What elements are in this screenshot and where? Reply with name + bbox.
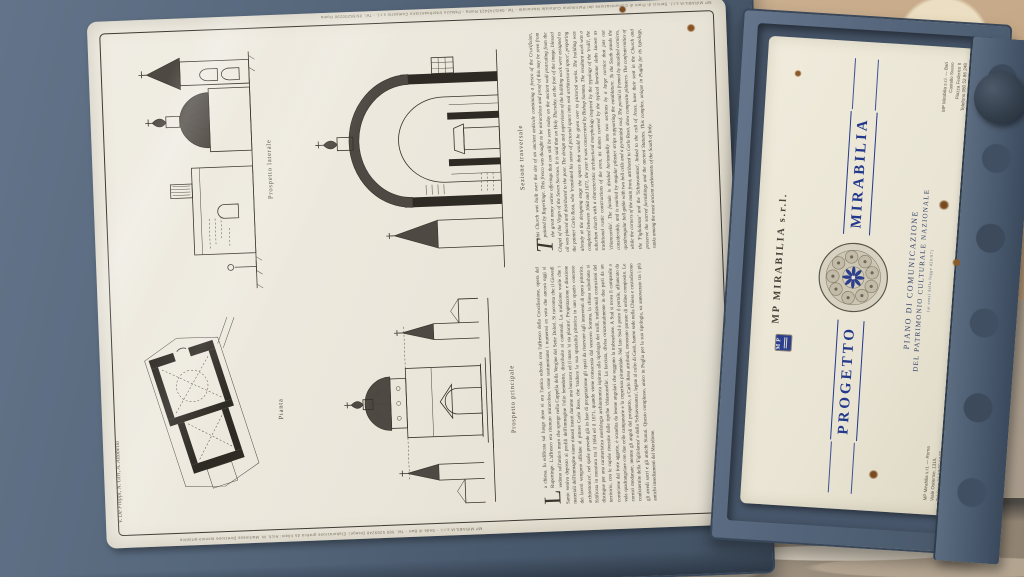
transverse-section-drawing [281, 39, 520, 284]
floor-plan-drawing [124, 315, 279, 509]
main-facade-drawing [303, 290, 511, 516]
frame-bottom-lip [0, 547, 773, 577]
pivot-knob [974, 72, 1024, 124]
main-panel-frame: MP MIRABILIA s.r.l. Servizi di Piani di … [0, 0, 775, 577]
project-title-row: PROGETTO [798, 54, 909, 497]
mp-logo-text: MP [776, 336, 783, 350]
authors-note: V. De Filippi, N. Giri, A. Altobello [114, 440, 123, 522]
photo-of-information-panel: MP MIRABILIA s.r.l. Servizi di Piani di … [0, 0, 1024, 577]
rosette-medallion-icon [814, 238, 893, 317]
figure-floor-plan: Pianta [124, 314, 288, 508]
english-dropcap: T [535, 236, 556, 252]
english-text-column: This Church was built over the site of a… [527, 26, 717, 253]
card-content-rotated: MP MP MIRABILIA s.r.l. PROGETTO [749, 43, 972, 509]
italian-dropcap: L [542, 487, 563, 504]
figure-main-facade: Prospetto principale [303, 289, 520, 515]
mirabilia-word: MIRABILIA [843, 111, 878, 236]
italian-text-column: La chiesa, fu edificata sul luogo dove v… [534, 259, 729, 504]
english-paragraph: his Church was built over the site of an… [528, 28, 657, 251]
address-bari: MP Mirabilia s.r.l. — Bari Castello Svev… [941, 62, 969, 114]
information-sheet: MP MIRABILIA s.r.l. Servizi di Piani di … [87, 0, 746, 549]
progetto-word: PROGETTO [830, 319, 865, 441]
figure-transverse-section: Sezione trasversale [281, 39, 529, 284]
rule-line-right [852, 58, 879, 110]
company-name: MP MIRABILIA s.r.l. [770, 192, 789, 324]
rule-line-left [828, 442, 855, 494]
italian-paragraph: a chiesa, fu edificata sul luogo dove vi… [535, 262, 658, 503]
mp-logo-icon: MP [776, 335, 792, 351]
side-elevation-drawing [111, 43, 269, 300]
sheet-content-rotated: V. De Filippi, N. Giri, A. Altobello [97, 11, 736, 534]
figure-side-elevation: Prospetto laterale [111, 43, 278, 301]
